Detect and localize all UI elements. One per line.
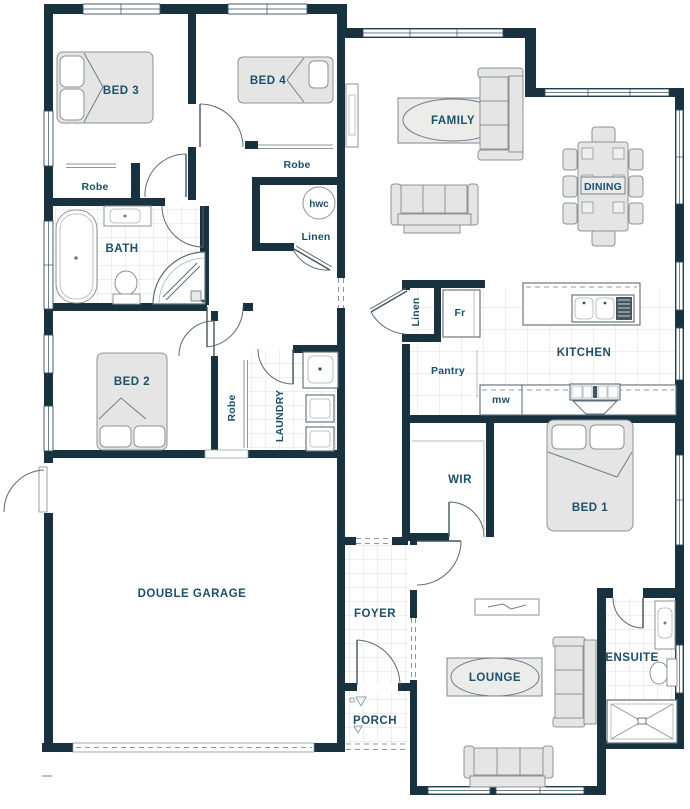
bed1-furniture	[547, 420, 633, 531]
dining-chair	[629, 176, 643, 197]
bed3-robe-slider	[66, 164, 116, 168]
window-bed3-top	[83, 4, 160, 14]
window-bed1-right	[676, 455, 683, 545]
window-dining-top	[545, 89, 669, 96]
pillow	[100, 426, 131, 447]
closet-label-linen-hall: Linen	[302, 231, 331, 243]
window-bed4-top	[228, 4, 307, 14]
room-label-lounge: LOUNGE	[469, 672, 521, 684]
pillow	[60, 56, 84, 87]
family-sofa-horizontal	[391, 184, 478, 233]
bed1-door	[417, 541, 461, 585]
floor-plan-drawing: BED 3 BED 4 Robe Robe hwc Linen BATH FAM…	[0, 0, 690, 809]
room-label-dining: DINING	[584, 181, 622, 193]
closet-label-robe-bed3: Robe	[81, 181, 108, 193]
room-label-bed1: BED 1	[572, 502, 608, 514]
bed2-door	[179, 321, 214, 356]
room-label-ensuite: ENSUITE	[605, 652, 658, 664]
window-bath-left	[44, 221, 53, 309]
shower-head	[191, 291, 201, 301]
closet-label-robe-bed2: Robe	[226, 394, 238, 421]
floor-plan-canvas: BED 3 BED 4 Robe Robe hwc Linen BATH FAM…	[0, 0, 690, 809]
dining-chair	[629, 149, 643, 170]
kitchen-sink	[572, 295, 634, 322]
window-lounge-bottom-2	[496, 787, 584, 794]
room-label-bed4: BED 4	[250, 75, 286, 87]
dining-chair	[592, 127, 615, 143]
room-label-kitchen: KITCHEN	[557, 347, 612, 359]
label-pantry: Pantry	[431, 365, 465, 377]
dining-chair	[592, 230, 615, 246]
room-label-garage: DOUBLE GARAGE	[138, 588, 247, 600]
pillow	[552, 425, 586, 449]
bed4-door	[200, 104, 243, 147]
window-bed2-left-1	[44, 335, 53, 373]
garage-side-door	[4, 467, 47, 512]
dining-chair	[563, 176, 577, 197]
lounge-furniture	[447, 599, 596, 787]
drainer	[616, 297, 632, 320]
room-label-wir: WIR	[448, 474, 472, 486]
linen-closet-door	[294, 246, 332, 270]
window-bed2-left-2	[44, 406, 53, 451]
lounge-sofa-vertical	[553, 637, 596, 727]
lounge-sofa-horizontal	[464, 746, 553, 787]
bed2-robe-slider	[244, 360, 248, 448]
porch-edge-line	[346, 744, 408, 750]
dining-chair	[563, 149, 577, 170]
room-label-laundry: LAUNDRY	[274, 390, 286, 442]
label-microwave: mw	[492, 394, 511, 406]
closet-label-linen-kitchen: Linen	[410, 298, 422, 327]
shower-drain	[638, 718, 646, 724]
pillow	[134, 426, 165, 447]
toilet	[650, 662, 668, 684]
window-kitchen-right-1	[676, 262, 683, 310]
garage-internal-opening	[205, 450, 248, 458]
window-bed3-left	[44, 111, 53, 166]
toilet-cistern	[667, 659, 677, 686]
bed3-door	[145, 154, 186, 197]
kitchen-hall-door	[370, 288, 407, 334]
window-kitchen-right-2	[676, 328, 683, 380]
room-label-bed2: BED 2	[114, 376, 150, 388]
room-label-bath: BATH	[105, 243, 138, 255]
wir-shelving	[412, 441, 484, 532]
dining-chair	[629, 203, 643, 224]
room-label-foyer: FOYER	[354, 608, 396, 620]
pillow	[309, 61, 328, 88]
window-family-top	[363, 29, 503, 37]
toilet-cistern	[113, 294, 140, 304]
room-label-bed3: BED 3	[103, 85, 139, 97]
lounge-tv-unit	[475, 599, 539, 615]
laundry-appliances	[303, 352, 338, 451]
label-hwc: hwc	[309, 199, 329, 210]
window-dining-right	[676, 110, 683, 204]
bed2-furniture	[97, 353, 167, 450]
wir-door	[449, 502, 484, 537]
room-label-porch: PORCH	[353, 715, 397, 727]
closet-label-robe-bed4: Robe	[283, 159, 310, 171]
pillow	[60, 89, 84, 120]
dining-chair	[563, 203, 577, 224]
hall-foyer-threshold	[356, 539, 392, 544]
tub-drain	[74, 256, 78, 260]
label-fridge: Fr	[455, 307, 466, 319]
bed4-robe-slider	[258, 145, 333, 149]
room-label-family: FAMILY	[431, 115, 475, 127]
family-sofa-vertical	[478, 68, 523, 160]
ensuite-shower	[607, 700, 677, 743]
pillow	[590, 425, 624, 449]
family-tv-unit	[346, 84, 358, 147]
family-furniture	[346, 68, 523, 233]
toilet	[115, 271, 137, 295]
window-lounge-bottom-1	[428, 787, 490, 794]
